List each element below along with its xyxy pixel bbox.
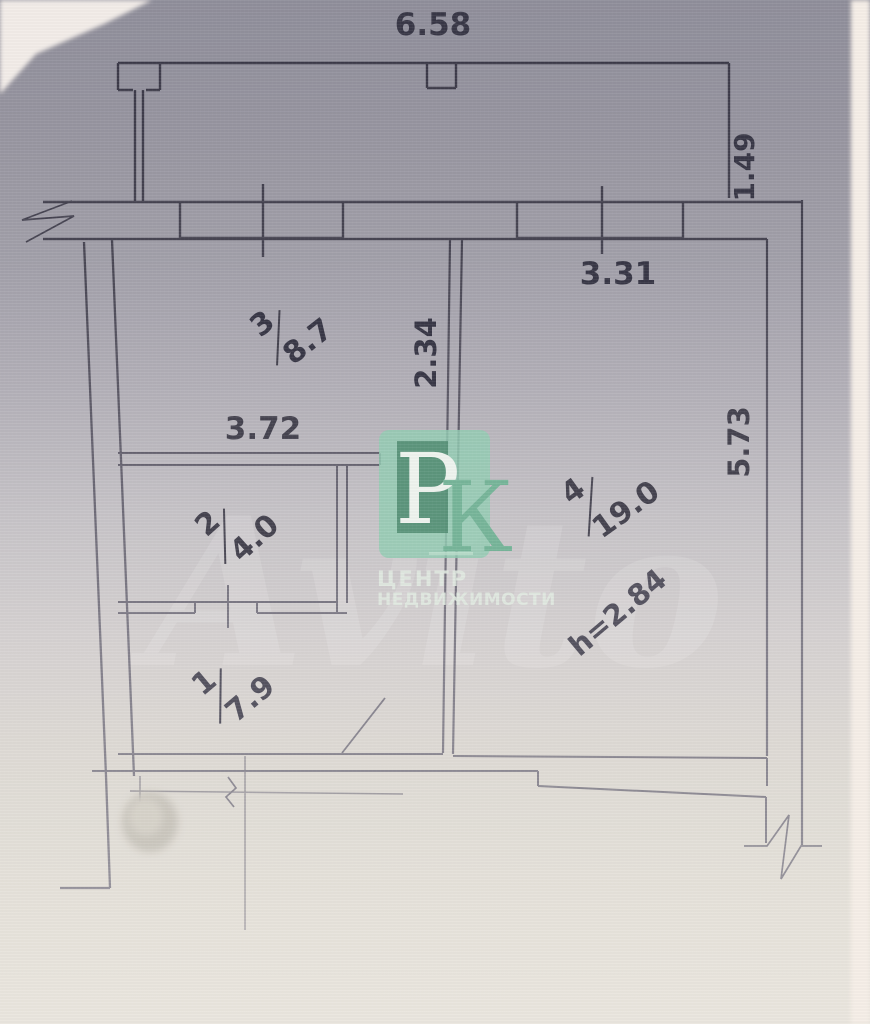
page-edge-strip — [851, 0, 870, 1024]
dim-room3-width: 3.72 — [225, 411, 302, 447]
watermark-caption-line2: НЕДВИЖИМОСТИ — [377, 590, 556, 610]
dim-right-side: 5.73 — [722, 406, 756, 478]
walls-balcony — [118, 63, 729, 202]
walls-left — [60, 240, 134, 888]
dim-top-width: 6.58 — [395, 7, 472, 43]
room-3-area: 8.7 — [276, 312, 339, 372]
floor-plan-canvas: Avito 6.58 1.49 3.31 2.34 3.72 5.73 h=2.… — [0, 0, 870, 1024]
stamp-smudge — [122, 792, 178, 852]
walls-bottom — [92, 754, 767, 843]
dim-room4-width: 3.31 — [580, 256, 657, 292]
walls-top — [43, 184, 802, 257]
dim-balcony-offset: 1.49 — [728, 132, 761, 201]
watermark-letter-k: К — [438, 461, 513, 574]
watermark-divider — [429, 552, 473, 555]
break-mark-top-left — [22, 201, 74, 242]
dim-mid-vertical: 2.34 — [409, 317, 443, 389]
watermark-caption-line1: ЦЕНТР — [377, 567, 468, 591]
page-corner-highlight — [0, 0, 152, 94]
floor-plan-photo: Avito 6.58 1.49 3.31 2.34 3.72 5.73 h=2.… — [0, 0, 870, 1024]
lines-below-faint — [130, 756, 403, 930]
room-label-3: 3 8.7 — [241, 279, 340, 380]
room-3-number: 3 — [244, 304, 282, 344]
